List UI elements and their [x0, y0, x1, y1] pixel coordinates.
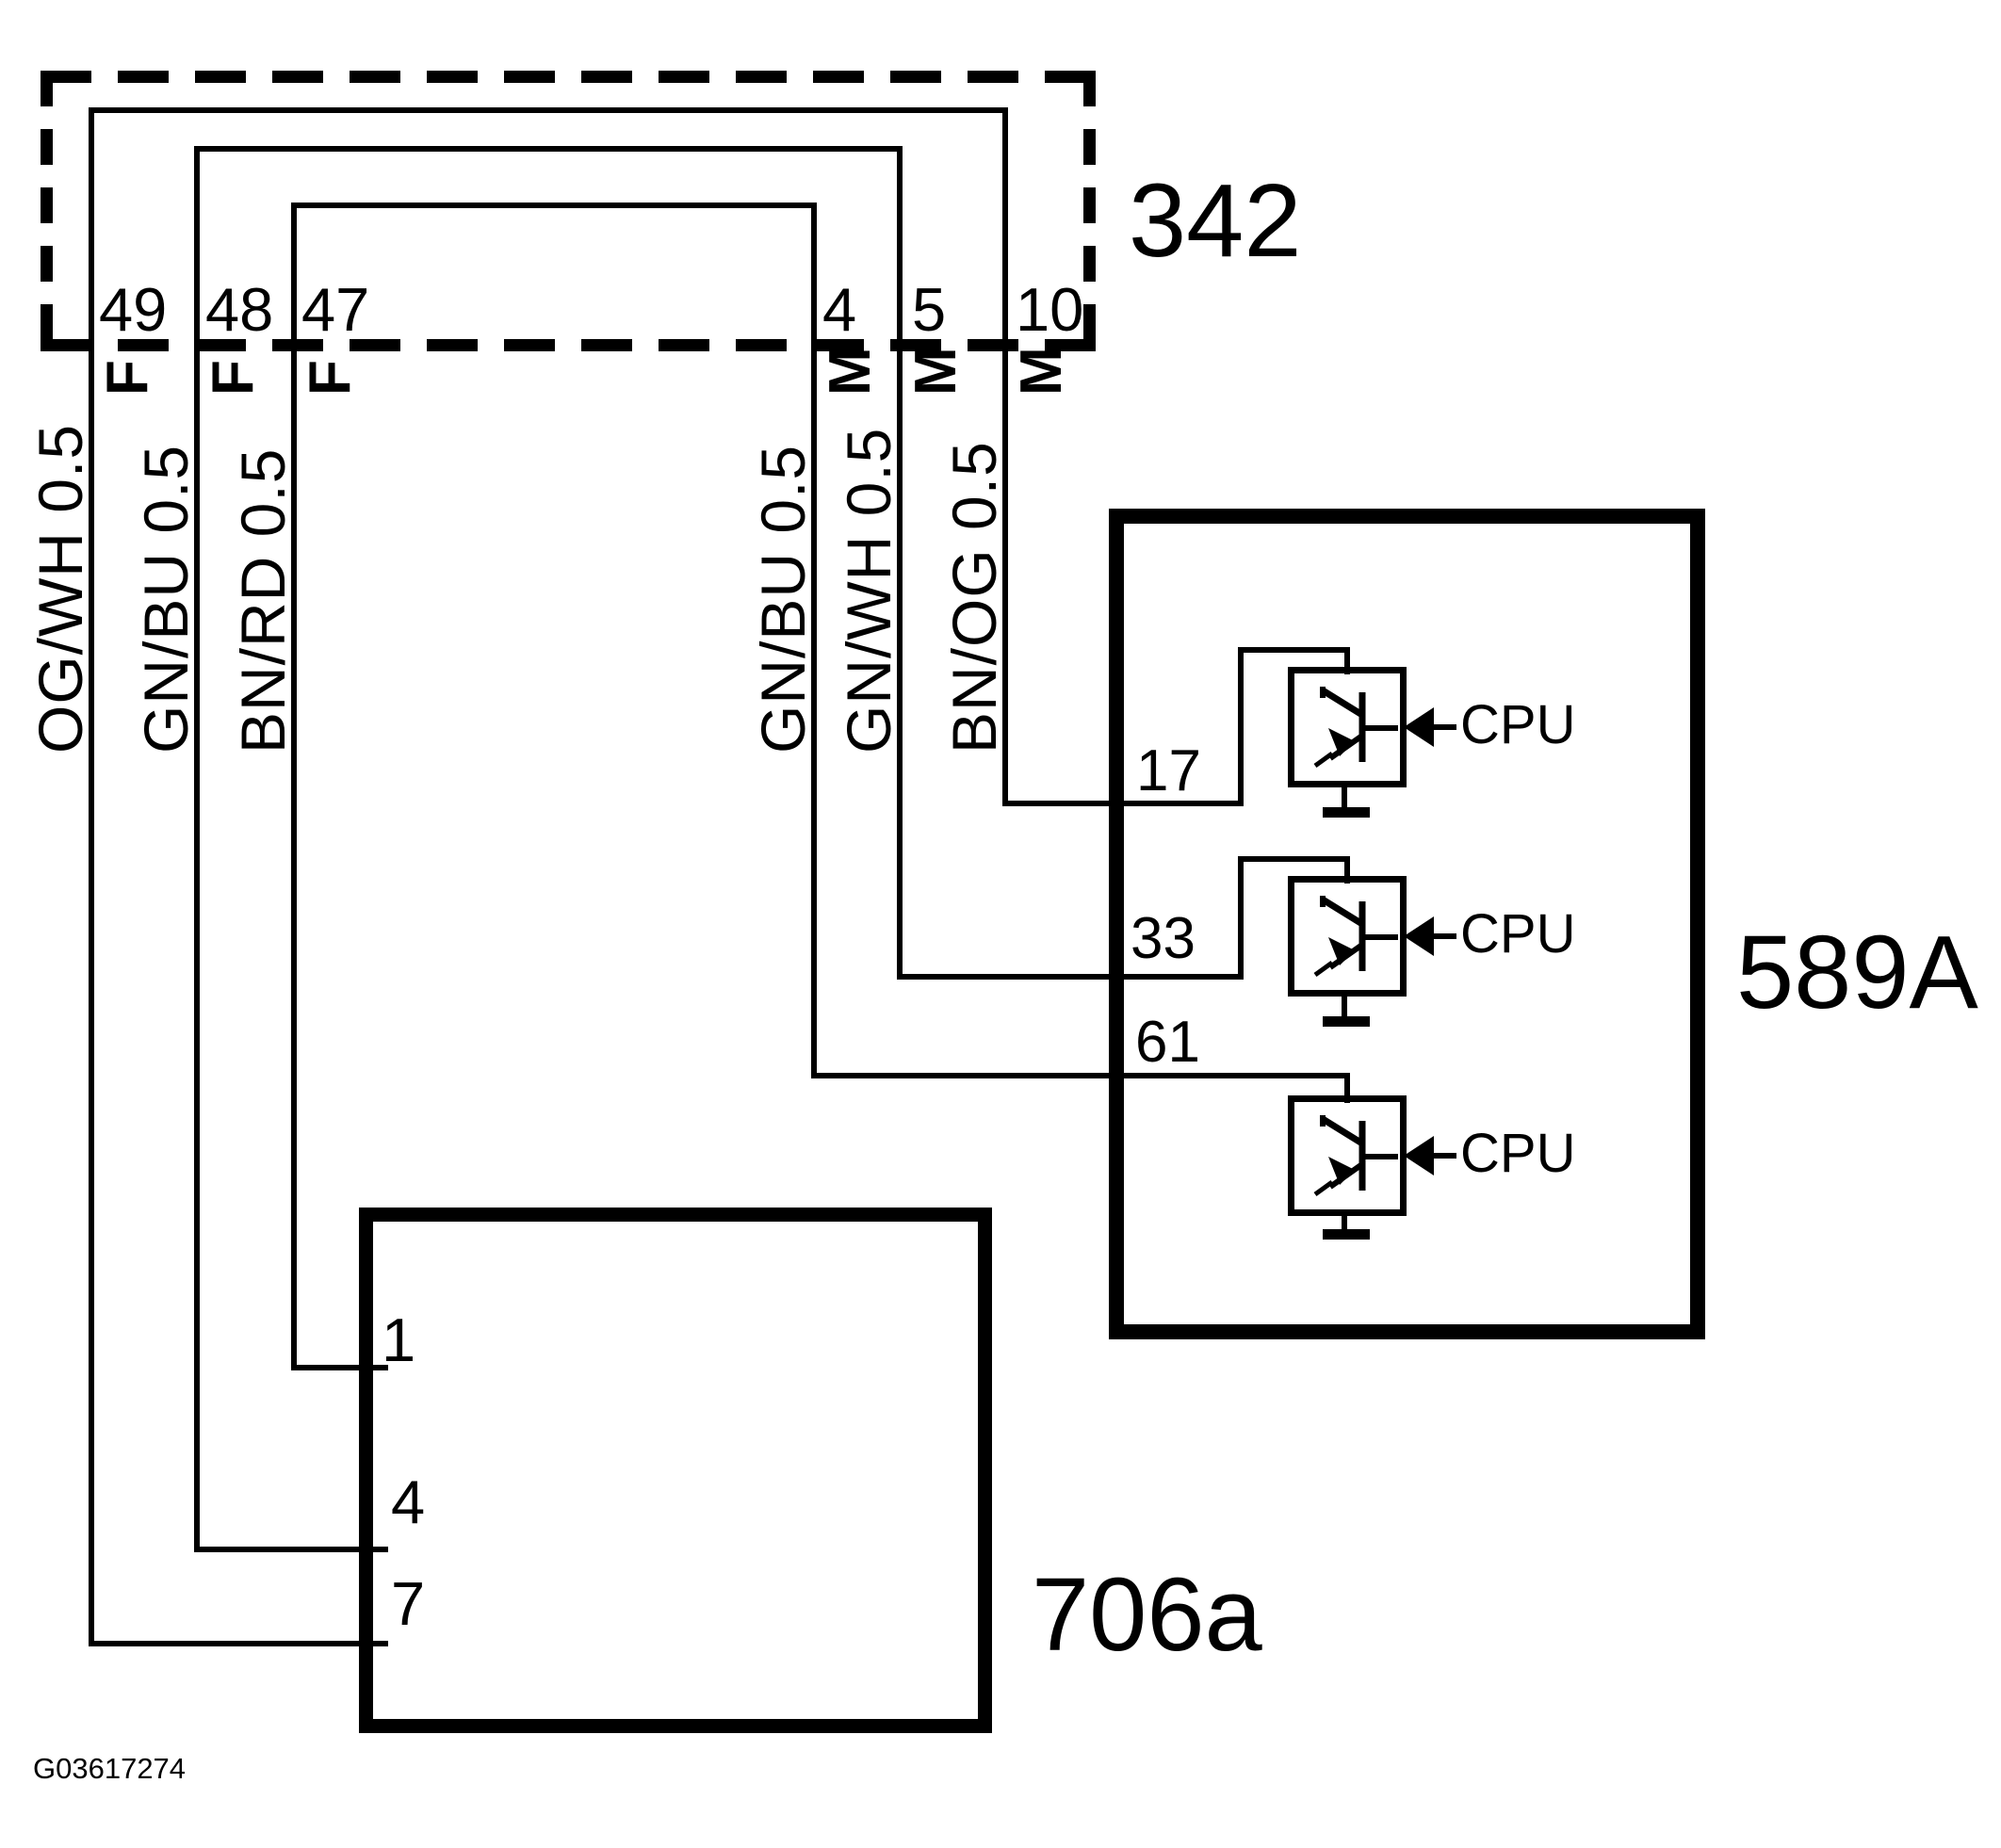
- cpu-label-1: CPU: [1460, 698, 1575, 753]
- ground-icon: [1323, 807, 1370, 818]
- connector-342-label: 342: [1129, 170, 1302, 273]
- pin-5-gender-label: M: [907, 347, 966, 396]
- ground-stub-2: [1342, 996, 1347, 1018]
- module-706a-label: 706a: [1032, 1564, 1262, 1667]
- pin-47-gender-label: F: [301, 360, 360, 396]
- pin-4-706a-label: 4: [391, 1471, 425, 1532]
- wire-bridge-47-4: [291, 203, 817, 208]
- cpu-arrow-line-2: [1430, 933, 1456, 939]
- ground-icon: [1323, 1229, 1370, 1240]
- module-706a-box: [359, 1208, 992, 1733]
- wire-label-gn-wh: GN/WH 0.5: [838, 428, 900, 754]
- pin-7-label: 7: [391, 1573, 425, 1634]
- pin-1-label: 1: [382, 1309, 415, 1370]
- ground-stub-1: [1342, 786, 1347, 809]
- wire-label-og-wh: OG/WH 0.5: [29, 424, 91, 754]
- pin-4-gender-label: M: [822, 347, 880, 396]
- optocoupler-icon: [1294, 1102, 1400, 1209]
- cpu-label-2: CPU: [1460, 907, 1575, 962]
- optocoupler-icon: [1294, 883, 1400, 990]
- wire-bridge-49-10: [89, 107, 1008, 113]
- pin-47-label: 47: [301, 279, 369, 340]
- pin-10-gender-label: M: [1013, 347, 1071, 396]
- ground-stub-3: [1342, 1211, 1347, 1231]
- wire-label-gn-bu-right: GN/BU 0.5: [752, 445, 814, 754]
- pin-48-gender-label: F: [204, 360, 263, 396]
- pin-4-label: 4: [822, 279, 856, 340]
- connector-342-border-right: [1083, 71, 1096, 351]
- pin-48-label: 48: [205, 279, 273, 340]
- connector-342-border-top: [41, 71, 1096, 83]
- optocoupler-icon: [1294, 673, 1400, 781]
- wire-label-gn-bu-left: GN/BU 0.5: [135, 445, 197, 754]
- wiring-diagram: 342 49 48 47 4 5 10 F F F M M M OG/WH 0.…: [0, 0, 2001, 1848]
- pin-17-label: 17: [1136, 742, 1201, 801]
- pin-61-label: 61: [1135, 1013, 1200, 1072]
- ground-icon: [1323, 1016, 1370, 1027]
- figure-id: G03617274: [33, 1754, 186, 1783]
- pin-5-label: 5: [912, 279, 946, 340]
- wire-label-bn-rd: BN/RD 0.5: [232, 448, 294, 754]
- cpu-label-3: CPU: [1460, 1127, 1575, 1181]
- connector-342-border-left: [41, 71, 53, 351]
- wire-bridge-48-5: [194, 146, 903, 152]
- wire-gn-bu-left-vertical: [194, 146, 200, 1552]
- pin-10-label: 10: [1016, 279, 1083, 340]
- module-589a-label: 589A: [1736, 921, 1978, 1025]
- pin-49-gender-label: F: [99, 360, 157, 396]
- cpu-arrow-line-1: [1430, 724, 1456, 730]
- wire-label-bn-og: BN/OG 0.5: [943, 441, 1005, 754]
- wire-og-wh-vertical: [89, 107, 94, 1646]
- pin-49-label: 49: [99, 279, 167, 340]
- wire-pin7-horizontal: [89, 1641, 388, 1646]
- wire-bn-rd-vertical: [291, 203, 297, 1370]
- pin-33-label: 33: [1131, 910, 1196, 968]
- cpu-arrow-line-3: [1430, 1153, 1456, 1159]
